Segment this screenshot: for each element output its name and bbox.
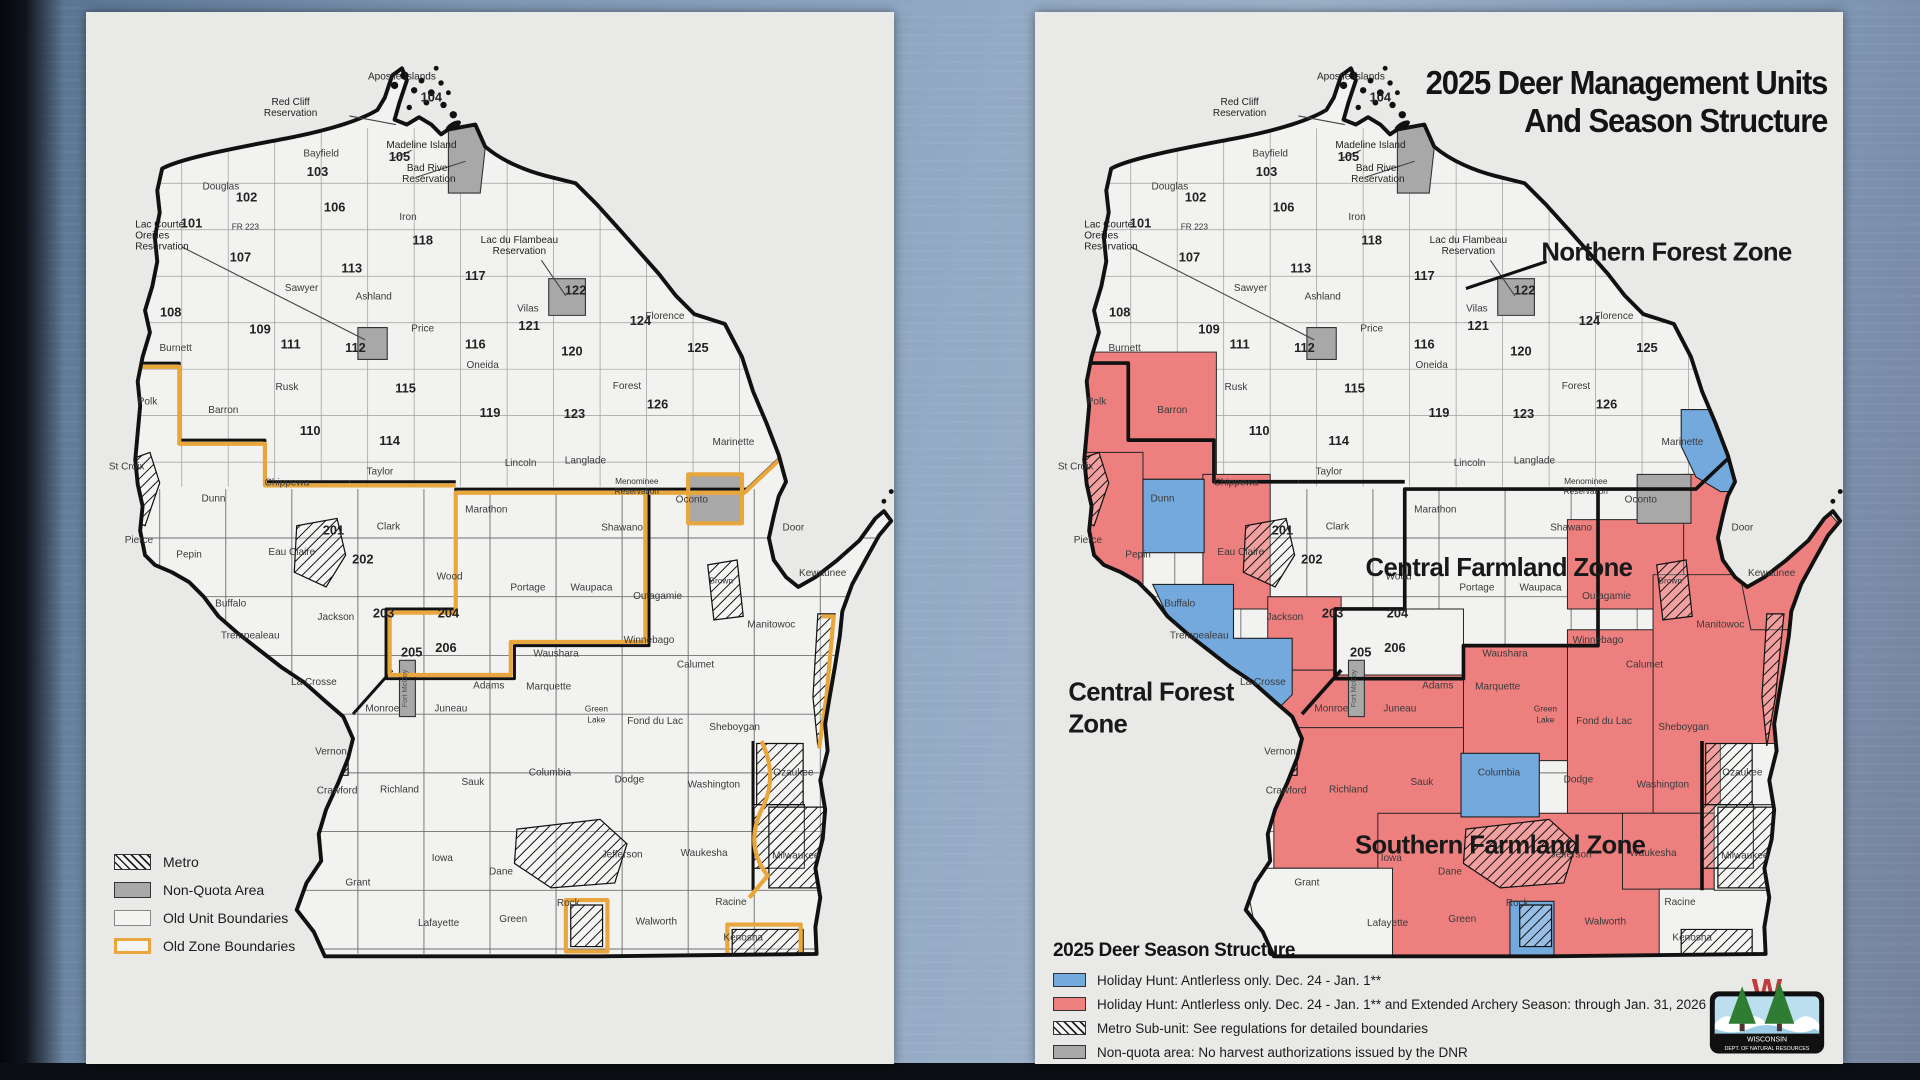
map-label: Door [1732,523,1754,534]
map-label: Shawano [1550,523,1592,534]
map-label: Dunn [1151,493,1175,504]
map-label: Marquette [526,682,572,693]
map-label: Pierce [125,535,154,546]
map-label: Racine [715,897,747,908]
map-label: Reservation [493,246,546,257]
map-label: Juneau [434,704,467,715]
map-label: 107 [1179,250,1200,265]
map-label: Vilas [517,304,539,315]
legend-row-gray: Non-quota area: No harvest authorization… [1053,1040,1706,1064]
map-label: Portage [1459,583,1495,594]
map-label: Ashland [1305,291,1341,302]
map-label: Reservation [402,174,455,185]
map-label: Wood [437,572,463,583]
map-label: 111 [281,336,301,351]
map-label: Marathon [1414,504,1456,515]
map-label: 111 [1230,336,1250,351]
map-label: 101 [181,215,202,230]
map-label: Waupaca [571,583,613,594]
map-label: Washington [688,780,741,791]
map-label: Brown [709,575,733,585]
non-quota-swatch [114,882,151,898]
map-label: Green [499,914,527,925]
legend-label: Holiday Hunt: Antlerless only. Dec. 24 -… [1097,973,1381,988]
map-label: Columbia [529,767,572,778]
map-label: St Croix [109,461,145,472]
legend-row-oldzone: Old Zone Boundaries [114,932,295,960]
metro-hatch-swatch [114,854,151,870]
map-label: Trempealeau [1170,630,1229,641]
map-label: Walworth [1585,917,1626,928]
map-label: Price [411,323,434,334]
map-label: 105 [1338,149,1359,164]
map-label: Reservation [1351,174,1404,185]
map-label: Waupaca [1520,583,1562,594]
map-label: Winnebago [1573,635,1624,646]
map-label: Marinette [1662,437,1704,448]
map-label: Oconto [1625,495,1658,506]
map-label: Milwaukee [772,850,820,861]
map-label: Washington [1637,780,1690,791]
map-label: 205 [1350,645,1371,660]
map-title: 2025 Deer Management Units And Season St… [1425,64,1827,140]
map-label: Chippewa [1214,477,1259,488]
map-label: Jefferson [602,849,643,860]
map-label: Douglas [1152,181,1189,192]
map-label: Barron [208,405,238,416]
map-label: 126 [1596,396,1617,411]
map-label: Pepin [1125,550,1151,561]
map-label: Eau Claire [268,547,315,558]
map-label: Reservation [264,108,317,119]
map-label: Lafayette [1367,918,1409,929]
map-label: 109 [1198,322,1219,337]
gray-swatch [1053,1045,1086,1059]
map-label: Rock [557,898,581,909]
map-label: Forest [613,381,642,392]
old-zone-swatch [114,938,151,954]
map-label: Richland [380,784,419,795]
map-label: 203 [373,606,394,621]
map-label: Oreilles [1084,230,1118,241]
season-structure-map-panel: Apostle Islands104Red CliffReservationMa… [1035,12,1843,1064]
map-label: Dodge [1564,775,1594,786]
map-label: 204 [438,606,460,621]
map-label: 114 [1328,433,1350,448]
wisconsin-dnr-logo: W WISCONSIN DEPT. OF NATURAL RESOURCES [1707,974,1827,1056]
map-label: Clark [377,521,401,532]
map-label: Green [1534,704,1557,714]
map-label: 106 [324,199,345,214]
map-label: Oconto [676,495,709,506]
map-label: Ozaukee [773,767,814,778]
map-label: Polk [138,397,158,408]
map-label: Milwaukee [1721,850,1769,861]
map-label: 101 [1130,215,1151,230]
map-label: Pepin [176,550,202,561]
map-label: Crawford [317,786,358,797]
metro-subunit-area [1657,560,1692,620]
map-label: Adams [473,680,504,691]
map-label: Calumet [1626,660,1664,671]
map-label: Oreilles [135,230,169,241]
map-label: Oneida [467,360,500,371]
legend-row-oldunit: Old Unit Boundaries [114,904,295,932]
map-label: Eau Claire [1217,547,1264,558]
map-label: Lake [1536,715,1554,725]
map-label: Lafayette [418,918,460,929]
map-label: Richland [1329,784,1368,795]
map-label: Florence [1594,311,1633,322]
map-label: Outagamie [633,591,682,602]
map-label: Green [585,704,608,714]
map-label: Dane [1438,866,1462,877]
map-label: Dane [489,866,513,877]
map-label: Marinette [713,437,755,448]
map-label: Menominee [615,476,659,486]
map-label: Fond du Lac [627,716,683,727]
map-label: 115 [395,380,416,395]
map-label: Sheboygan [709,722,760,733]
2025-deer-management-units-map: Apostle Islands104Red CliffReservationMa… [1035,12,1843,1064]
map-label: Trempealeau [221,630,280,641]
map-label: Apostle Islands [368,71,436,82]
map-label: 206 [1384,640,1405,655]
map-label: 120 [561,344,582,359]
map-label: La Crosse [291,677,337,688]
map-label: 123 [564,406,585,421]
season-structure-legend: 2025 Deer Season Structure Holiday Hunt:… [1053,940,1706,1064]
map-label: Bad River [407,163,452,174]
map-label: Crawford [1266,786,1307,797]
map-label: Reservation [1442,246,1495,257]
map-label: 120 [1510,344,1531,359]
map-label: 121 [1467,318,1488,333]
map-label: Racine [1664,897,1696,908]
map-label: Monroe [365,704,399,715]
map-label: 108 [160,305,181,320]
map-label: Kenosha [723,932,763,943]
legend-label: Metro [163,854,199,870]
map-label: Sawyer [285,283,319,294]
legend-row-hatch: Metro Sub-unit: See regulations for deta… [1053,1016,1706,1040]
map-label: Reservation [1084,241,1137,252]
map-label: 110 [300,423,321,438]
map-label: 115 [1344,380,1365,395]
map-label: Red Cliff [271,97,309,108]
red-swatch [1053,997,1086,1011]
map-label: Menominee [1564,476,1608,486]
map-label: Sauk [1410,777,1434,788]
zone-label: Northern Forest Zone [1541,238,1792,266]
map-label: Lac du Flambeau [481,235,558,246]
map-label: Taylor [367,466,394,477]
map-label: Rock [1506,898,1530,909]
logo-line2: DEPT. OF NATURAL RESOURCES [1725,1046,1810,1052]
map-label: 113 [1290,261,1311,276]
map-label: St Croix [1058,461,1094,472]
blue-swatch [1053,973,1086,987]
legend-label: Non-quota area: No harvest authorization… [1097,1045,1468,1060]
map-label: Brown [1658,575,1682,585]
legend-title: 2025 Deer Season Structure [1053,940,1706,962]
map-label: Sauk [461,777,485,788]
map-label: 102 [1185,190,1206,205]
map-label: Apostle Islands [1317,71,1385,82]
map-label: 105 [389,149,410,164]
map-label: Reservation [615,486,660,496]
map-label: Price [1360,323,1383,334]
map-label: 202 [352,552,373,567]
map-label: Marathon [465,504,507,515]
map-label: Ashland [356,291,392,302]
map-label: FR 223 [232,222,260,232]
map-label: Grant [1294,877,1319,888]
legend-row-metro: Metro [114,848,295,876]
map-label: 201 [323,522,344,537]
map-label: 113 [341,261,362,276]
map-label: Fort McCoy [400,669,409,707]
map-label: Jackson [1266,612,1303,623]
map-label: Juneau [1383,704,1416,715]
map-label: Shawano [601,523,643,534]
map-label: 114 [379,433,401,448]
map-label: Chippewa [265,477,310,488]
map-label: 103 [1256,164,1277,179]
logo-line1: WISCONSIN [1747,1037,1787,1044]
logo-trunk [1740,1024,1745,1031]
map-label: Reservation [1213,108,1266,119]
map-label: Lincoln [505,458,537,469]
map-label: Polk [1087,397,1107,408]
legend-label: Metro Sub-unit: See regulations for deta… [1097,1021,1428,1036]
zone-label: Southern Farmland Zone [1355,832,1646,860]
logo-trunk [1777,1024,1782,1031]
map-label: 119 [1429,405,1450,420]
map-label: Lincoln [1454,458,1486,469]
map-label: Oneida [1416,360,1449,371]
map-label: Green [1448,914,1476,925]
map-label: 123 [1513,406,1534,421]
map-label: Winnebago [624,635,675,646]
map-label: Burnett [1108,343,1141,354]
map-label: Manitowoc [1696,619,1744,630]
map-label: Waukesha [681,848,728,859]
map-label: 102 [236,190,257,205]
map-label: 121 [518,318,539,333]
map-label: 110 [1249,423,1270,438]
metro-subunit-area [708,560,743,620]
map-label: Waushara [1482,649,1528,660]
map-label: Barron [1157,405,1187,416]
map-label: Iron [399,212,416,223]
map-label: Buffalo [1164,599,1195,610]
map-label: Lac Courte [1084,219,1133,230]
map-label: Reservation [1564,486,1609,496]
map-label: 117 [465,268,486,283]
map-label: Taylor [1316,466,1343,477]
map-label: Bad River [1356,163,1401,174]
map-label: Adams [1422,680,1453,691]
map-label: Fond du Lac [1576,716,1632,727]
metro-subunit-area [571,905,603,947]
map-label: Florence [645,311,684,322]
map-label: Columbia [1478,767,1521,778]
map-label: 112 [1294,340,1315,355]
map-label: Vernon [1264,747,1296,758]
map-label: Lac Courte [135,219,184,230]
zone-label: Zone [1068,710,1127,738]
map-label: Ozaukee [1722,767,1763,778]
map-label: 122 [565,283,586,298]
map-label: 126 [647,396,668,411]
map-label: Dunn [202,493,226,504]
map-label: Outagamie [1582,591,1631,602]
map-label: Marquette [1475,682,1521,693]
map-label: Jackson [317,612,354,623]
map-label: Bayfield [1252,148,1288,159]
map-label: 125 [1636,340,1657,355]
old-units-map-panel: Apostle Islands104Red CliffReservationMa… [86,12,894,1064]
map-label: Kewaunee [799,568,847,579]
map-label: Iron [1348,212,1365,223]
map-label: Door [783,523,805,534]
map-label: 109 [249,322,270,337]
map-label: Pierce [1074,535,1103,546]
map-label: 205 [401,645,422,660]
map-label: Forest [1562,381,1591,392]
map-label: Calumet [677,660,715,671]
map-label: FR 223 [1181,222,1209,232]
map-label: Rusk [1225,382,1249,393]
left-dark-strip [0,0,64,1080]
map-label: Monroe [1314,704,1348,715]
map-label: 122 [1514,283,1535,298]
map-label: 106 [1273,199,1294,214]
map-label: Vilas [1466,304,1488,315]
map-label: Dodge [615,775,645,786]
map-label: 117 [1414,268,1435,283]
map-label: Langlade [1514,455,1556,466]
map-label: 104 [421,89,443,104]
map-title-line1: 2025 Deer Management Units [1425,64,1827,102]
zone-label: Central Farmland Zone [1366,554,1633,582]
map-label: 116 [1414,336,1435,351]
map-label: 204 [1387,606,1409,621]
legend-label: Old Unit Boundaries [163,910,288,926]
old-unit-swatch [114,910,151,926]
legend-row-nonquota: Non-Quota Area [114,876,295,904]
map-label: Douglas [203,181,240,192]
map-label: 107 [230,250,251,265]
map-label: Reservation [135,241,188,252]
map-label: 206 [435,640,456,655]
map-label: 118 [1361,232,1382,247]
map-label: Rusk [276,382,300,393]
zone-label: Central Forest [1068,679,1235,707]
map-label: Vernon [315,747,347,758]
map-label: 202 [1301,552,1322,567]
legend-label: Holiday Hunt: Antlerless only. Dec. 24 -… [1097,997,1706,1012]
map-label: La Crosse [1240,677,1286,688]
bottom-black-bar [0,1063,1920,1080]
map-label: 104 [1370,89,1392,104]
map-label: Burnett [159,343,192,354]
map-label: Lake [587,715,605,725]
map-label: Portage [510,583,546,594]
map-label: Walworth [636,917,677,928]
legend-label: Old Zone Boundaries [163,938,295,954]
map-label: Waushara [533,649,579,660]
map-label: Lac du Flambeau [1430,235,1507,246]
map-label: Langlade [565,455,607,466]
map-label: 119 [480,405,501,420]
map-label: Manitowoc [747,619,795,630]
map-label: Red Cliff [1220,97,1258,108]
map-label: 125 [687,340,708,355]
map-label: Iowa [432,853,454,864]
map-label: 112 [345,340,366,355]
hatch-swatch [1053,1021,1086,1035]
map-label: 108 [1109,305,1130,320]
map-label: 103 [307,164,328,179]
map-label: Bayfield [303,148,339,159]
map-label: Buffalo [215,599,246,610]
map-label: Kewaunee [1748,568,1796,579]
map-label: Clark [1326,521,1350,532]
map-label: 201 [1272,522,1293,537]
old-map-legend: Metro Non-Quota Area Old Unit Boundaries… [114,848,295,960]
map-label: 203 [1322,606,1343,621]
map-label: Sheboygan [1658,722,1709,733]
map-label: Fort McCoy [1349,669,1358,707]
map-label: 116 [465,336,486,351]
map-label: Grant [345,877,370,888]
map-label: Sawyer [1234,283,1268,294]
legend-label: Non-Quota Area [163,882,264,898]
legend-row-red: Holiday Hunt: Antlerless only. Dec. 24 -… [1053,992,1706,1016]
map-label: 118 [412,232,433,247]
legend-row-blue: Holiday Hunt: Antlerless only. Dec. 24 -… [1053,968,1706,992]
map-title-line2: And Season Structure [1425,102,1827,140]
